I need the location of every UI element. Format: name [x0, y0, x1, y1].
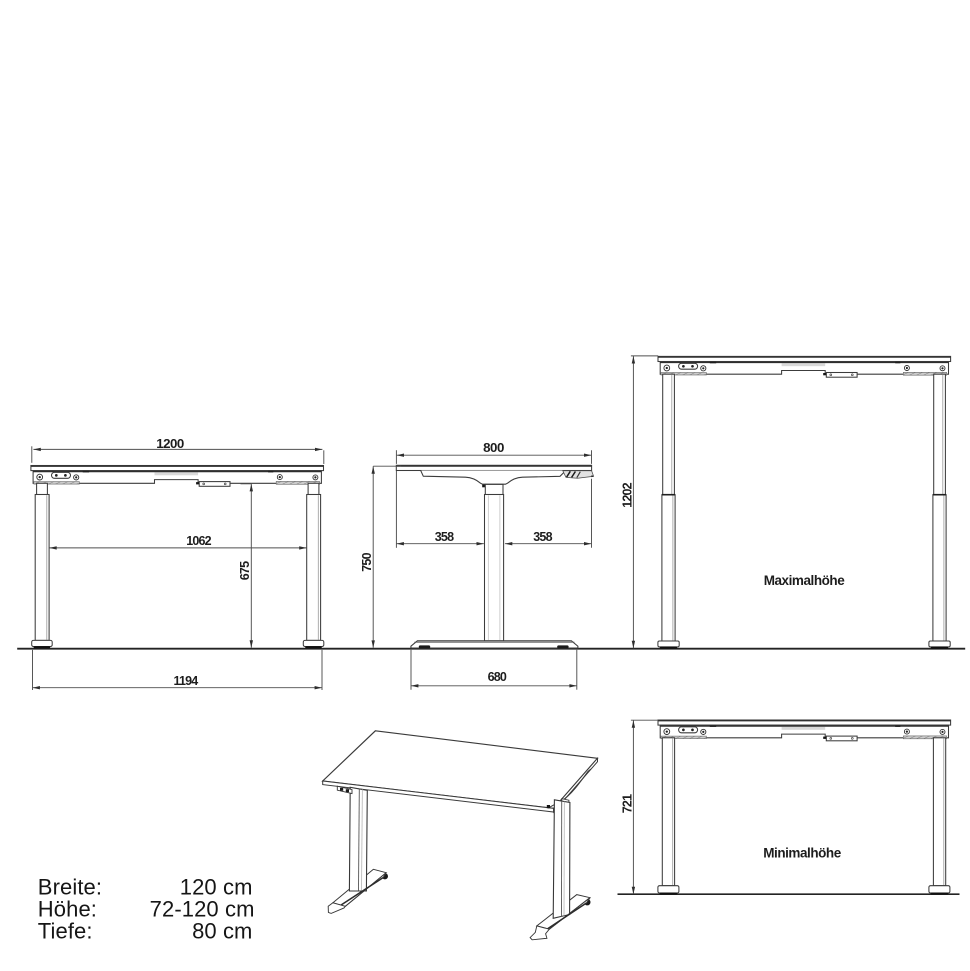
svg-text:Minimalhöhe: Minimalhöhe [763, 845, 841, 860]
svg-text:1062: 1062 [186, 534, 211, 548]
svg-text:358: 358 [435, 530, 454, 544]
svg-text:Maximalhöhe: Maximalhöhe [764, 573, 846, 588]
svg-text:721: 721 [621, 794, 635, 813]
svg-text:680: 680 [488, 670, 507, 684]
svg-text:750: 750 [360, 552, 374, 571]
svg-text:800: 800 [483, 440, 504, 455]
svg-text:Tiefe:: Tiefe: [38, 918, 93, 943]
svg-text:358: 358 [533, 530, 552, 544]
svg-text:80 cm: 80 cm [192, 918, 252, 943]
svg-text:675: 675 [238, 561, 252, 580]
svg-text:1194: 1194 [174, 674, 199, 688]
svg-text:1200: 1200 [156, 436, 184, 451]
svg-text:1202: 1202 [621, 482, 635, 507]
